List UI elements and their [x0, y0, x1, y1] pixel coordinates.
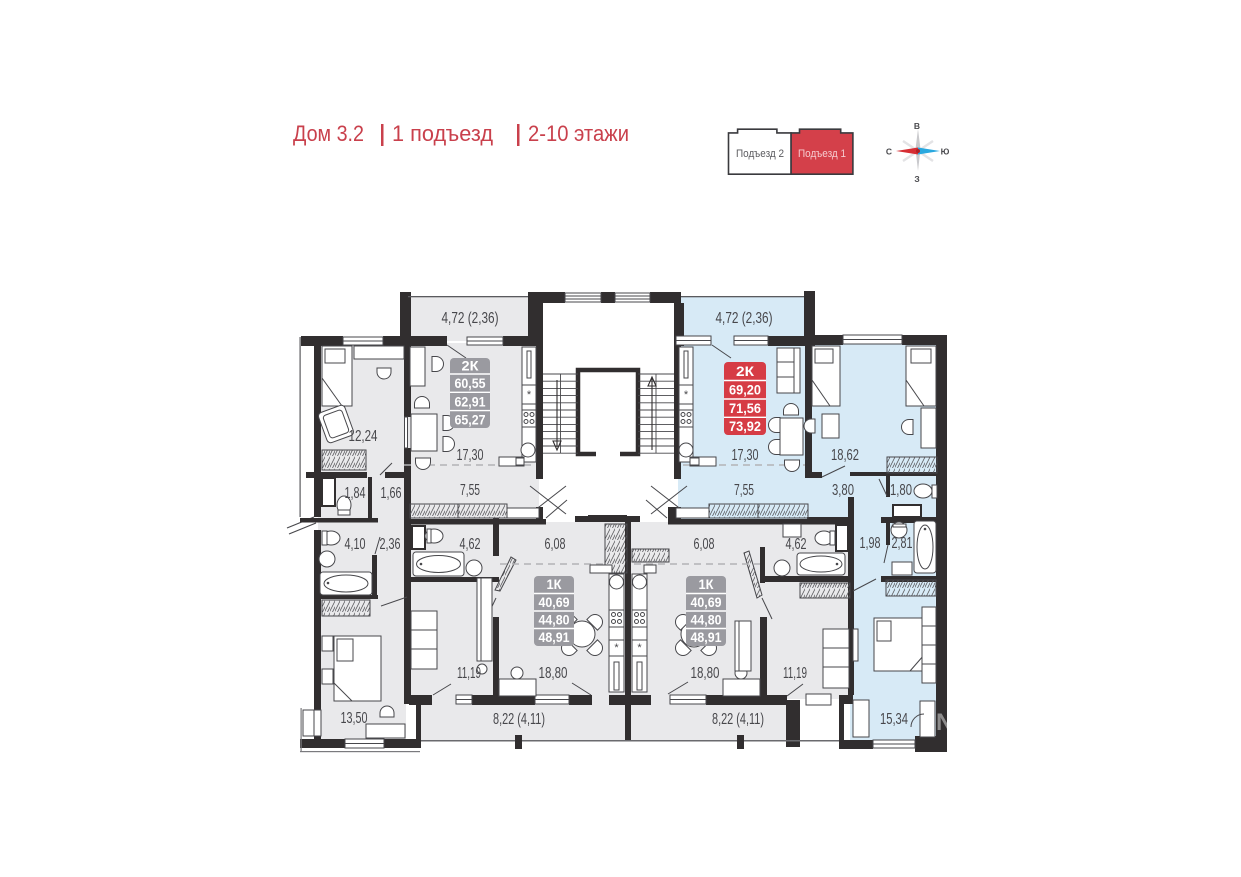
svg-text:*: * — [684, 389, 689, 401]
svg-text:Подъезд 1: Подъезд 1 — [798, 148, 846, 160]
svg-text:44,80: 44,80 — [539, 612, 570, 628]
svg-text:65,27: 65,27 — [455, 412, 486, 428]
svg-text:4,72 (2,36): 4,72 (2,36) — [716, 310, 773, 327]
svg-text:Подъезд 2: Подъезд 2 — [736, 148, 784, 160]
svg-text:11,19: 11,19 — [783, 665, 807, 682]
svg-text:1,84: 1,84 — [345, 485, 366, 502]
svg-text:С: С — [886, 147, 892, 157]
svg-text:1 подъезд: 1 подъезд — [392, 121, 493, 146]
svg-text:18,80: 18,80 — [539, 665, 568, 682]
svg-text:8,22 (4,11): 8,22 (4,11) — [712, 711, 764, 728]
svg-text:8,22 (4,11): 8,22 (4,11) — [493, 711, 545, 728]
svg-text:62,91: 62,91 — [455, 393, 486, 409]
svg-text:7,55: 7,55 — [460, 482, 480, 499]
svg-text:4,72 (2,36): 4,72 (2,36) — [442, 310, 499, 327]
svg-text:4,10: 4,10 — [345, 536, 366, 553]
svg-text:69,20: 69,20 — [729, 382, 761, 398]
svg-text:В: В — [914, 121, 920, 131]
svg-text:Дом 3.2: Дом 3.2 — [293, 121, 364, 146]
svg-text:73,92: 73,92 — [729, 418, 761, 434]
svg-text:*: * — [637, 642, 642, 654]
svg-text:4,62: 4,62 — [786, 536, 807, 553]
svg-text:3,80: 3,80 — [832, 482, 854, 499]
svg-text:48,91: 48,91 — [539, 629, 570, 645]
svg-text:1К: 1К — [547, 576, 562, 592]
svg-text:4,62: 4,62 — [460, 536, 481, 553]
svg-text:11,19: 11,19 — [457, 665, 481, 682]
svg-text:1,66: 1,66 — [381, 485, 402, 502]
svg-text:12,24: 12,24 — [349, 428, 378, 445]
svg-text:*: * — [527, 389, 532, 401]
svg-text:40,69: 40,69 — [691, 594, 722, 610]
svg-text:7,55: 7,55 — [734, 482, 754, 499]
svg-text:13,50: 13,50 — [341, 710, 368, 727]
svg-text:2,36: 2,36 — [380, 536, 401, 553]
svg-text:2К: 2К — [462, 358, 479, 374]
svg-text:40,69: 40,69 — [539, 594, 570, 610]
svg-text:18,62: 18,62 — [831, 447, 859, 464]
svg-text:17,30: 17,30 — [732, 447, 759, 464]
svg-text:2-10 этажи: 2-10 этажи — [528, 121, 629, 146]
svg-text:1,98: 1,98 — [860, 535, 881, 552]
svg-text:N: N — [936, 709, 953, 736]
svg-text:1К: 1К — [699, 576, 714, 592]
svg-text:1,80: 1,80 — [890, 482, 912, 499]
svg-text:18,80: 18,80 — [691, 665, 720, 682]
svg-text:71,56: 71,56 — [729, 400, 761, 416]
svg-text:*: * — [614, 642, 619, 654]
svg-text:2К: 2К — [736, 363, 754, 379]
svg-text:48,91: 48,91 — [691, 629, 722, 645]
svg-text:60,55: 60,55 — [455, 375, 486, 391]
svg-text:44,80: 44,80 — [691, 612, 722, 628]
svg-text:17,30: 17,30 — [457, 447, 484, 464]
svg-text:Ю: Ю — [941, 147, 950, 157]
svg-text:З: З — [914, 174, 919, 184]
svg-text:2,81: 2,81 — [892, 535, 913, 552]
svg-text:6,08: 6,08 — [694, 536, 715, 553]
svg-text:15,34: 15,34 — [880, 711, 908, 728]
svg-text:6,08: 6,08 — [545, 536, 566, 553]
